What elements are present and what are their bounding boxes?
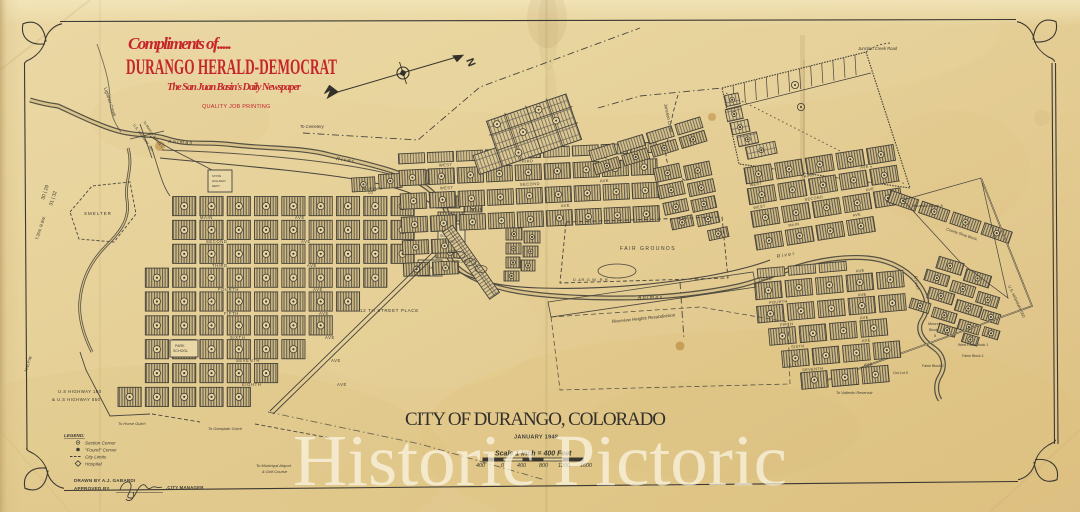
svg-text:FIFTH: FIFTH [224,311,239,316]
svg-text:WEST: WEST [439,162,453,168]
svg-text:EIGHTH: EIGHTH [242,382,261,387]
svg-text:SIXTH: SIXTH [230,335,245,340]
svg-text:QUALITY JOB PRINTING: QUALITY JOB PRINTING [202,104,271,110]
svg-text:AVE: AVE [856,268,865,274]
svg-text:The San Juan Basin's Daily New: The San Juan Basin's Daily Newspaper [167,82,302,93]
svg-text:Historic Pictoric: Historic Pictoric [293,420,787,501]
svg-text:Hospital: Hospital [85,462,103,467]
svg-text:AVE: AVE [325,335,335,340]
svg-text:"Found" Corner: "Found" Corner [85,448,117,453]
svg-text:SCHOOL: SCHOOL [173,349,188,353]
svg-text:AVE: AVE [295,215,305,220]
svg-text:AVE: AVE [862,337,871,343]
svg-text:SEVENTH: SEVENTH [236,358,260,363]
svg-text:To Vallecito Reservoir: To Vallecito Reservoir [836,391,873,395]
svg-text:DURANGO HERALD-DEMOCRAT: DURANGO HERALD-DEMOCRAT [126,54,337,79]
svg-text:STATE: STATE [212,174,221,178]
svg-text:& U.S HIGHWAY 550: & U.S HIGHWAY 550 [52,397,101,402]
svg-text:THIRD: THIRD [212,263,228,268]
svg-text:FAIR GROUNDS: FAIR GROUNDS [620,246,676,252]
svg-text:To Cemetery: To Cemetery [300,124,325,129]
svg-text:AVE: AVE [864,361,873,367]
svg-text:HATCHERY: HATCHERY [452,260,473,264]
svg-text:City Limits: City Limits [85,455,107,460]
svg-text:To Municipal Airport: To Municipal Airport [256,463,292,468]
svg-text:AVE: AVE [331,358,341,363]
svg-text:DEPT: DEPT [212,184,220,188]
svg-text:West River Block 1: West River Block 1 [958,343,988,347]
svg-text:12 TH STREET PLACE: 12 TH STREET PLACE [360,308,419,313]
svg-text:,CITY MANAGER: ,CITY MANAGER [166,485,204,490]
svg-text:WEST: WEST [440,185,454,191]
svg-text:MAIN: MAIN [471,207,483,213]
svg-text:HIGHWAY: HIGHWAY [212,179,226,183]
svg-text:& Golf Course: & Golf Course [262,469,288,474]
svg-text:FOURTH: FOURTH [218,287,239,292]
svg-text:LEGEND:: LEGEND: [64,433,85,438]
svg-text:Mound: Mound [928,322,940,326]
svg-text:SMELTER: SMELTER [84,211,112,216]
svg-text:Junction Creek Road: Junction Creek Road [857,46,898,51]
svg-text:PARK: PARK [175,344,185,348]
svg-text:STATE: STATE [443,240,455,244]
svg-text:MAIN: MAIN [200,215,213,220]
svg-text:APPROVED BY: APPROVED BY [74,486,110,491]
svg-text:FISH: FISH [448,250,457,254]
svg-text:AVE: AVE [313,287,323,292]
svg-text:Faine Block 2: Faine Block 2 [922,364,944,368]
svg-text:Faine Block 1: Faine Block 1 [962,354,984,358]
svg-text:AVE: AVE [337,382,347,387]
svg-text:To Gamplain Gulch: To Gamplain Gulch [208,426,243,431]
svg-text:AVE: AVE [319,311,329,316]
svg-text:AVE: AVE [301,239,311,244]
svg-text:Block: Block [929,328,938,332]
svg-text:U.S HIGHWAY 160: U.S HIGHWAY 160 [58,389,102,394]
svg-text:SECOND: SECOND [520,181,540,187]
svg-text:AVE: AVE [307,263,317,268]
svg-text:To Horse Gulch: To Horse Gulch [118,421,146,426]
svg-text:CO: CO [368,191,373,195]
svg-text:Compliments of.....: Compliments of..... [128,34,232,53]
svg-text:SECOND: SECOND [206,239,228,244]
svg-text:AVE: AVE [860,315,869,321]
svg-text:AVE: AVE [858,292,867,298]
svg-text:D.&R.G.W. R.R.: D.&R.G.W. R.R. [573,277,610,282]
svg-text:Out Lot 5: Out Lot 5 [893,371,908,375]
svg-text:AVE: AVE [561,203,570,208]
svg-text:Mountain Block 5: Mountain Block 5 [912,203,943,208]
svg-text:5: 5 [934,334,936,338]
svg-text:Animas: Animas [637,295,664,301]
svg-text:Section Corner: Section Corner [85,441,116,446]
svg-text:AVE: AVE [600,178,609,183]
